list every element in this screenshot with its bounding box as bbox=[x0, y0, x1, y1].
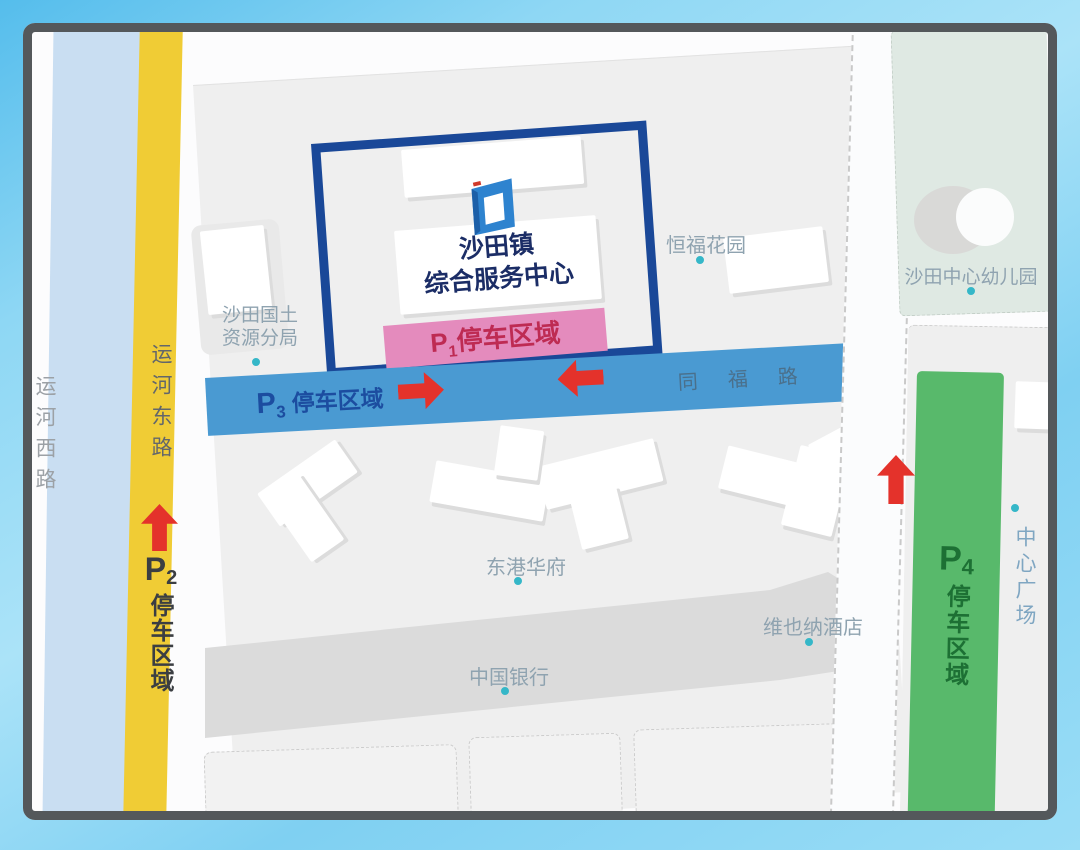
parking-p4-label: P4 bbox=[913, 539, 1001, 581]
arrow-right-icon bbox=[397, 371, 445, 410]
poi-label-hengfu-garden: 恒福花园 bbox=[651, 229, 761, 258]
parking-p3-label: P3 停车区域 bbox=[256, 379, 385, 423]
service-center-logo-icon bbox=[461, 171, 523, 237]
parking-area-p4: P4 停车区域 bbox=[908, 371, 1004, 820]
parking-p2-area-label: 停车区域 bbox=[142, 593, 177, 693]
kindergarten-marker-icon bbox=[967, 287, 975, 295]
poi-label-central-plaza: 中心广场 bbox=[1009, 526, 1039, 630]
parking-p2-label: P2 bbox=[135, 551, 187, 590]
parking-p1-label: P1停车区域 bbox=[429, 318, 561, 359]
poi-label-bank-of-china: 中国银行 bbox=[444, 661, 574, 690]
map-canvas: 运河西路 运河东路 沙田镇 综合服务中心 P1停车区域 bbox=[23, 23, 1057, 820]
bottom-lot-block bbox=[204, 744, 460, 820]
kindergarten-round-building bbox=[956, 188, 1014, 246]
parking-p4-area-label: 停车区域 bbox=[936, 584, 973, 689]
central-plaza-marker-icon bbox=[1011, 504, 1019, 512]
land-bureau-building bbox=[200, 225, 272, 315]
donggang-marker-icon bbox=[514, 577, 522, 585]
building bbox=[1014, 381, 1057, 430]
road-label-tongfu: 同福路 bbox=[677, 358, 828, 395]
hengfu-garden-marker-icon bbox=[696, 256, 704, 264]
bottom-lot-block bbox=[468, 733, 623, 820]
poi-label-land-bureau: 沙田国土 资源分局 bbox=[195, 304, 325, 350]
poi-label-kindergarten: 沙田中心幼儿园 bbox=[901, 262, 1041, 289]
parking-guide-map: { "colors": { "sky": "#7ecdf0", "frame_b… bbox=[0, 0, 1080, 850]
vienna-hotel-marker-icon bbox=[805, 638, 813, 646]
arrow-left-icon bbox=[557, 358, 605, 397]
building bbox=[494, 425, 545, 481]
bank-of-china-marker-icon bbox=[501, 687, 509, 695]
land-bureau-marker-icon bbox=[252, 358, 260, 366]
poi-label-donggang: 东港华府 bbox=[461, 551, 591, 580]
poi-label-vienna-hotel: 维也纳酒店 bbox=[748, 611, 878, 640]
